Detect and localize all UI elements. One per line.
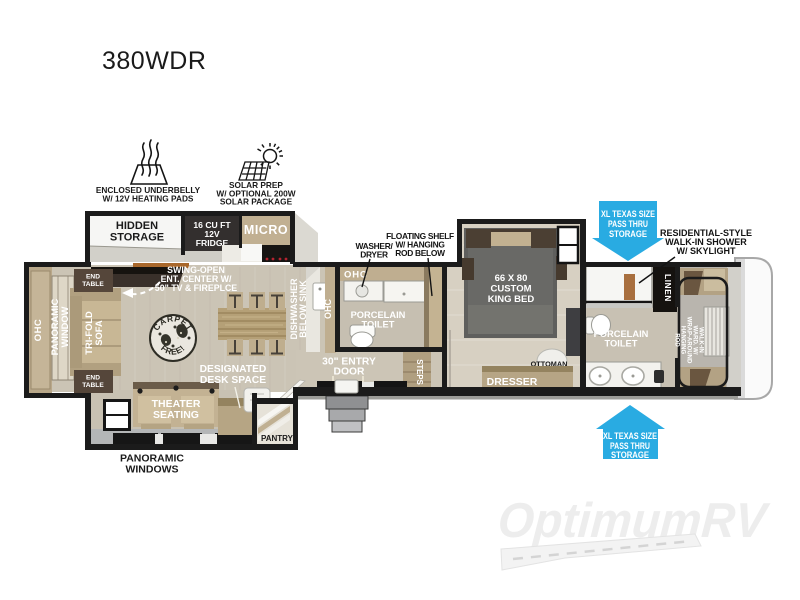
svg-text:HIDDEN: HIDDEN bbox=[116, 220, 158, 232]
svg-text:DRESSER: DRESSER bbox=[487, 376, 538, 388]
svg-text:ROD: ROD bbox=[674, 333, 680, 347]
svg-text:XL TEXAS SIZE: XL TEXAS SIZE bbox=[603, 431, 657, 441]
svg-text:PASS THRU: PASS THRU bbox=[608, 219, 648, 229]
svg-text:TRI-FOLD: TRI-FOLD bbox=[84, 311, 94, 355]
svg-text:STEPS: STEPS bbox=[415, 359, 424, 385]
svg-text:LINEN: LINEN bbox=[663, 274, 673, 302]
svg-text:W/ 12V HEATING PADS: W/ 12V HEATING PADS bbox=[103, 194, 194, 204]
svg-text:STORAGE: STORAGE bbox=[609, 229, 647, 239]
svg-text:TABLE: TABLE bbox=[82, 382, 104, 389]
svg-text:TOILET: TOILET bbox=[362, 320, 395, 330]
svg-text:XL TEXAS SIZE: XL TEXAS SIZE bbox=[601, 209, 655, 219]
svg-text:ROD BELOW: ROD BELOW bbox=[395, 248, 445, 258]
svg-text:CUSTOM: CUSTOM bbox=[491, 284, 532, 295]
svg-text:MICRO: MICRO bbox=[244, 223, 288, 237]
svg-text:50" TV & FIREPLCE: 50" TV & FIREPLCE bbox=[155, 283, 238, 293]
svg-text:STORAGE: STORAGE bbox=[110, 232, 164, 244]
svg-text:TOILET: TOILET bbox=[605, 339, 638, 349]
svg-text:END: END bbox=[86, 375, 100, 382]
svg-text:DESK SPACE: DESK SPACE bbox=[200, 375, 266, 386]
svg-text:OHC: OHC bbox=[323, 299, 333, 320]
svg-text:PANTRY: PANTRY bbox=[261, 434, 294, 443]
svg-text:SOFA: SOFA bbox=[94, 320, 104, 346]
svg-text:END: END bbox=[86, 274, 100, 281]
svg-text:KING BED: KING BED bbox=[488, 294, 535, 305]
svg-text:TABLE: TABLE bbox=[82, 281, 104, 288]
svg-text:W/ SKYLIGHT: W/ SKYLIGHT bbox=[677, 246, 736, 256]
svg-text:BELOW SINK: BELOW SINK bbox=[298, 280, 308, 338]
svg-text:SEATING: SEATING bbox=[153, 409, 199, 421]
svg-text:DOOR: DOOR bbox=[334, 367, 365, 378]
svg-text:OHC: OHC bbox=[33, 319, 44, 342]
svg-text:66 X 80: 66 X 80 bbox=[495, 273, 528, 284]
svg-text:STORAGE: STORAGE bbox=[611, 450, 649, 460]
svg-text:DRYER: DRYER bbox=[360, 250, 388, 260]
svg-text:DESIGNATED: DESIGNATED bbox=[200, 364, 267, 375]
svg-text:PORCELAIN: PORCELAIN bbox=[351, 310, 406, 320]
svg-text:380WDR: 380WDR bbox=[102, 47, 206, 75]
svg-text:SOLAR PACKAGE: SOLAR PACKAGE bbox=[220, 197, 293, 207]
svg-text:WINDOW: WINDOW bbox=[60, 306, 70, 347]
svg-text:PANORAMIC: PANORAMIC bbox=[50, 298, 60, 355]
svg-text:WINDOWS: WINDOWS bbox=[125, 464, 178, 476]
svg-text:PORCELAIN: PORCELAIN bbox=[594, 329, 649, 339]
